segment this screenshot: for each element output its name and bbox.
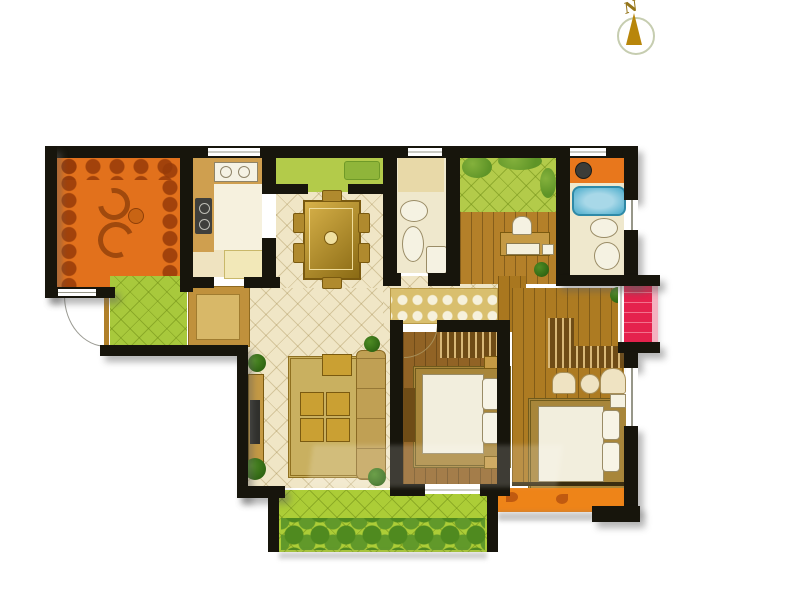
bay-bench bbox=[344, 161, 380, 180]
dining-chair bbox=[358, 243, 370, 263]
wall-bay-bottom bbox=[348, 184, 385, 194]
pouf-chair bbox=[552, 372, 576, 394]
toilet bbox=[590, 218, 618, 238]
window bbox=[208, 148, 260, 156]
coffee-table bbox=[300, 418, 324, 442]
wall-masterbath-left bbox=[556, 146, 570, 286]
balcony-shadow bbox=[498, 512, 594, 521]
wall-bay-bottom bbox=[262, 184, 308, 194]
dining-chair bbox=[322, 190, 342, 202]
bathtub bbox=[572, 186, 626, 216]
desk-chair bbox=[512, 216, 532, 235]
wardrobe bbox=[548, 346, 624, 368]
balcony-shadow bbox=[279, 552, 487, 559]
kitchen-sink-basin bbox=[220, 166, 232, 178]
dining-chair bbox=[293, 243, 305, 263]
wardrobe bbox=[440, 332, 497, 358]
bath-cabinet bbox=[426, 246, 447, 274]
pedestal-sink bbox=[594, 242, 620, 270]
wall-green-balcony-left bbox=[268, 488, 279, 552]
toilet bbox=[400, 200, 428, 222]
wall-corner-bottom-right bbox=[592, 506, 640, 522]
potted-plant-icon bbox=[248, 354, 266, 372]
pouf-chair bbox=[600, 368, 626, 394]
wall-bath-bottom bbox=[428, 273, 448, 286]
hedge-row bbox=[281, 518, 485, 550]
coffee-table bbox=[326, 418, 350, 442]
entry-console-top bbox=[196, 294, 240, 340]
coffee-table bbox=[300, 392, 324, 416]
refrigerator bbox=[224, 250, 264, 279]
pedestal-sink bbox=[402, 226, 424, 262]
wall-entry-bottom bbox=[100, 345, 240, 356]
wall-top bbox=[45, 146, 638, 158]
tv-icon bbox=[250, 400, 260, 444]
terrace-foliage-right bbox=[158, 162, 180, 282]
wall-bath-right bbox=[446, 146, 460, 286]
wall-kitchen-bottom bbox=[244, 277, 280, 288]
vanity-sink bbox=[575, 162, 592, 179]
watermark bbox=[307, 445, 563, 487]
red-balcony-rail bbox=[652, 284, 658, 342]
coffee-table bbox=[326, 392, 350, 416]
pillow bbox=[602, 442, 620, 472]
potted-plant-icon bbox=[534, 262, 549, 277]
wall-masterbath-right-upper bbox=[624, 146, 638, 200]
dining-chair bbox=[322, 277, 342, 289]
stove-burner bbox=[199, 219, 210, 230]
entry-garden-floor bbox=[110, 276, 187, 346]
wall-terrace-left bbox=[45, 146, 57, 298]
desk-accessory bbox=[542, 244, 554, 255]
shower-area bbox=[398, 158, 444, 192]
window bbox=[425, 486, 480, 494]
pouf-chair bbox=[580, 374, 600, 394]
dining-chair bbox=[293, 213, 305, 233]
desk-front-panel bbox=[506, 243, 540, 255]
floor-plan-canvas: N bbox=[0, 0, 800, 611]
terrace-foliage-left bbox=[57, 158, 77, 287]
leaf-decor-icon bbox=[556, 494, 568, 504]
window bbox=[626, 200, 638, 230]
nightstand bbox=[610, 394, 626, 408]
dresser bbox=[404, 388, 415, 442]
hallway-runner-rug bbox=[390, 288, 498, 324]
bed-mattress bbox=[422, 374, 484, 454]
window bbox=[626, 368, 638, 426]
stove-burner bbox=[199, 203, 210, 214]
wall-terrace-kitchen bbox=[180, 146, 193, 292]
window bbox=[58, 289, 96, 296]
dining-chair bbox=[358, 213, 370, 233]
wall-master-right-lower bbox=[624, 426, 638, 512]
potted-plant-icon bbox=[364, 336, 380, 352]
entry-door-swing-arc bbox=[64, 296, 107, 347]
kitchen-sink-basin bbox=[238, 166, 250, 178]
wall-kitchen-right-lower bbox=[262, 238, 276, 280]
compass-arrow-icon bbox=[626, 13, 642, 45]
wall-bath-left bbox=[383, 146, 397, 286]
balcony-door-window bbox=[618, 285, 624, 342]
window bbox=[570, 148, 606, 156]
wall-south-of-masterbath bbox=[556, 275, 660, 286]
terrace-table bbox=[128, 208, 144, 224]
kitchen-tile-floor bbox=[214, 184, 262, 250]
bush-icon bbox=[540, 168, 556, 198]
table-centerpiece bbox=[324, 231, 338, 245]
wall-bath-bottom bbox=[383, 273, 401, 286]
red-balcony bbox=[624, 283, 652, 343]
wall-green-balcony-right bbox=[487, 488, 498, 552]
side-table bbox=[322, 354, 352, 376]
wall-living-left bbox=[237, 345, 248, 498]
pillow bbox=[602, 410, 620, 440]
wall-kitchen-bottom bbox=[180, 277, 214, 288]
bush-icon bbox=[462, 156, 492, 178]
window bbox=[408, 148, 442, 156]
wall-master-right-upper bbox=[624, 352, 638, 368]
